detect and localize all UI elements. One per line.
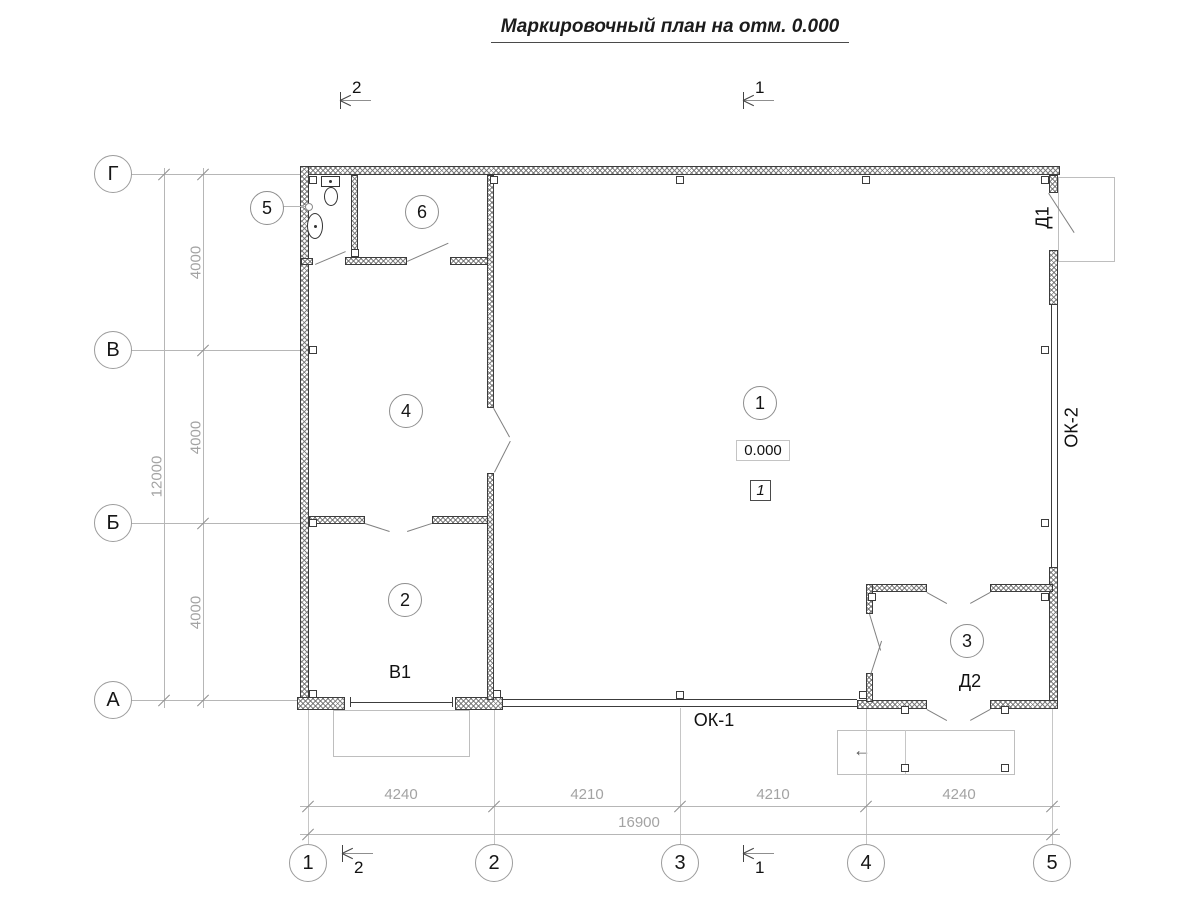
axis-label: В	[106, 339, 119, 362]
column-marker	[309, 176, 317, 184]
axis-circle-1: 1	[289, 844, 327, 882]
door-swing-room2	[365, 523, 390, 532]
room-number: 2	[400, 590, 410, 611]
dim-bottom-3: 4210	[743, 786, 803, 803]
partition-main-lower	[487, 473, 494, 700]
floor-plan: Маркировочный план на отм. 0.000 ←	[0, 0, 1200, 900]
column-marker	[676, 691, 684, 699]
column-marker	[309, 346, 317, 354]
door-swing-room4	[493, 408, 510, 437]
dim-line-left-total	[164, 168, 165, 708]
axis-circle-5: 5	[1033, 844, 1071, 882]
direction-arrow-icon: ←	[853, 743, 871, 757]
wall-left	[300, 166, 309, 707]
partition-room6-bottom-left	[345, 257, 407, 265]
axis-circle-3: 3	[661, 844, 699, 882]
porch-post	[1001, 764, 1009, 772]
witness-axis-5	[1052, 708, 1053, 844]
door-swing-room2	[407, 523, 432, 532]
section-label-bottom-2: 2	[354, 858, 363, 878]
dim-left-total: 12000	[149, 442, 166, 512]
door-swing-d2	[970, 709, 991, 721]
leader-line-room5	[283, 206, 307, 207]
axis-circle-v: В	[94, 331, 132, 369]
axis-label: 2	[488, 852, 499, 875]
door-swing-room4	[494, 441, 511, 473]
axis-label: 1	[302, 852, 313, 875]
wall-bottom-corner-left	[297, 697, 345, 710]
column-marker	[490, 176, 498, 184]
porch-post	[1001, 706, 1009, 714]
leader-target-room5	[305, 203, 313, 211]
axis-label: 3	[674, 852, 685, 875]
partition-room6-bottom-right	[450, 257, 488, 265]
axis-circle-2: 2	[475, 844, 513, 882]
gate-b1-jamb	[350, 697, 351, 707]
dim-bottom-1: 4240	[371, 786, 431, 803]
witness-axis-4	[866, 708, 867, 844]
section-label-top-2: 2	[352, 78, 361, 98]
room-circle-5: 5	[250, 191, 284, 225]
column-marker	[1041, 519, 1049, 527]
column-marker	[351, 249, 359, 257]
axis-label: А	[106, 689, 119, 712]
room-number: 4	[401, 401, 411, 422]
column-marker	[309, 519, 317, 527]
room-circle-4: 4	[389, 394, 423, 428]
partition-wc-right	[351, 175, 358, 257]
axis-circle-g: Г	[94, 155, 132, 193]
door-swing-tambour-side	[870, 641, 882, 676]
axis-label: Г	[108, 163, 119, 186]
dim-bottom-total: 16900	[609, 814, 669, 831]
label-gate-b1: В1	[375, 662, 425, 683]
door-swing-d2	[927, 709, 948, 721]
partition-wc-door-stub	[301, 258, 313, 265]
section-arrow-left-icon	[743, 847, 755, 859]
wall-top	[300, 166, 1060, 175]
wall-bottom-pilaster	[455, 697, 503, 710]
room-circle-2: 2	[388, 583, 422, 617]
dim-bottom-4: 4240	[929, 786, 989, 803]
axis-circle-b: Б	[94, 504, 132, 542]
tambour-left-stub-lower	[866, 673, 873, 702]
window-ok1	[503, 699, 857, 707]
porch-gate-b1	[333, 710, 470, 757]
column-marker	[676, 176, 684, 184]
dim-left-3: 4000	[188, 583, 205, 643]
room-number: 6	[417, 202, 427, 223]
column-marker	[1041, 346, 1049, 354]
axis-line-g	[131, 174, 300, 175]
dim-bottom-2: 4210	[557, 786, 617, 803]
label-door-d2: Д2	[945, 671, 995, 692]
tambour-top-left	[866, 584, 927, 592]
section-label-bottom-1: 1	[755, 858, 764, 878]
dim-line-bottom-total	[300, 834, 1060, 835]
room-number: 3	[962, 631, 972, 652]
tambour-top-right	[990, 584, 1053, 592]
axis-label: Б	[106, 512, 119, 535]
column-marker	[493, 690, 501, 698]
sink-dot	[314, 225, 317, 228]
gate-b1-jamb	[452, 697, 453, 707]
label-window-ok2: ОК-2	[1062, 400, 1083, 456]
page-title-text: Маркировочный план на отм. 0.000	[491, 16, 849, 43]
wall-right-top-stub	[1049, 175, 1058, 193]
witness-axis-1	[308, 710, 309, 844]
window-ok2	[1051, 305, 1058, 567]
room-circle-6: 6	[405, 195, 439, 229]
door-swing-wc	[315, 251, 346, 265]
label-window-ok1: ОК-1	[684, 710, 744, 731]
floor-type-value: 1	[756, 482, 764, 499]
floor-type-mark: 1	[750, 480, 771, 501]
axis-circle-a: А	[94, 681, 132, 719]
porch-post	[901, 706, 909, 714]
axis-circle-4: 4	[847, 844, 885, 882]
column-marker	[1041, 593, 1049, 601]
room-circle-1: 1	[743, 386, 777, 420]
porch-post	[901, 764, 909, 772]
column-marker	[862, 176, 870, 184]
axis-line-v	[131, 350, 300, 351]
section-arrow-left-icon	[340, 94, 352, 106]
door-swing-tambour-inner	[970, 592, 991, 604]
elevation-mark: 0.000	[736, 440, 790, 461]
section-arrow-left-icon	[342, 847, 354, 859]
page-title: Маркировочный план на отм. 0.000	[400, 16, 940, 38]
dim-left-2: 4000	[188, 408, 205, 468]
partition-room2-right	[432, 516, 488, 524]
section-arrow-left-icon	[743, 94, 755, 106]
column-marker	[1041, 176, 1049, 184]
axis-label: 4	[860, 852, 871, 875]
toilet-tank-dot	[329, 180, 332, 183]
wall-right-upper	[1049, 250, 1058, 305]
witness-axis-2	[494, 710, 495, 844]
axis-line-b	[131, 523, 300, 524]
room-number: 5	[262, 198, 272, 219]
label-door-d1: Д1	[1033, 198, 1054, 238]
witness-axis-3	[680, 708, 681, 844]
door-swing-tambour-inner	[927, 592, 948, 604]
room-number: 1	[755, 393, 765, 414]
axis-line-a	[131, 700, 300, 701]
dim-left-1: 4000	[188, 233, 205, 293]
gate-b1-leaf	[350, 702, 453, 703]
partition-main-upper	[487, 175, 494, 408]
door-swing-room6	[407, 243, 449, 262]
room-circle-3: 3	[950, 624, 984, 658]
axis-label: 5	[1046, 852, 1057, 875]
toilet-bowl-icon	[324, 187, 338, 206]
elevation-value: 0.000	[744, 442, 782, 459]
column-marker	[868, 593, 876, 601]
column-marker	[859, 691, 867, 699]
section-label-top-1: 1	[755, 78, 764, 98]
column-marker	[309, 690, 317, 698]
partition-room2-left	[309, 516, 365, 524]
